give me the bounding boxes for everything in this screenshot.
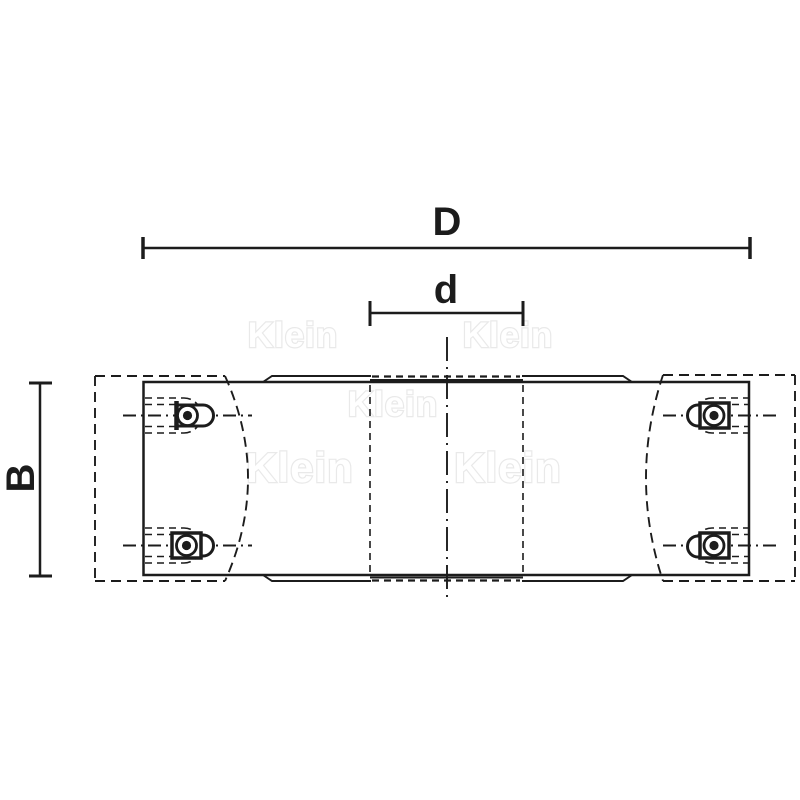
phantom-right-arc: [646, 375, 663, 581]
dimension-label-D: D: [433, 200, 462, 244]
watermark-text: Klein: [348, 385, 439, 424]
cutterhead-diagram: Klein Klein Klein Klein Klein: [0, 0, 800, 800]
phantom-left-arc: [225, 376, 248, 581]
dimension-label-B: B: [0, 464, 43, 493]
knife-top-right: [688, 403, 730, 428]
watermark-text: Klein: [248, 316, 339, 355]
screw-center: [709, 411, 718, 420]
knife-top-left: [176, 401, 214, 430]
dimension-outer-diameter: D: [143, 200, 750, 259]
dimension-label-d: d: [434, 268, 458, 312]
dimension-body-width: B: [0, 383, 52, 576]
knife-centerlines: [123, 416, 780, 546]
screw-center: [709, 541, 718, 550]
watermark-layer: Klein Klein Klein Klein Klein: [246, 316, 562, 491]
screw-center: [183, 411, 192, 420]
knife-bottom-right: [688, 533, 730, 558]
drawing-canvas: Klein Klein Klein Klein Klein: [0, 0, 800, 800]
watermark-text: Klein: [463, 316, 554, 355]
watermark-text: Klein: [246, 444, 354, 491]
watermark-text: Klein: [454, 444, 562, 491]
knife-bottom-left: [172, 533, 214, 558]
screw-center: [182, 541, 191, 550]
